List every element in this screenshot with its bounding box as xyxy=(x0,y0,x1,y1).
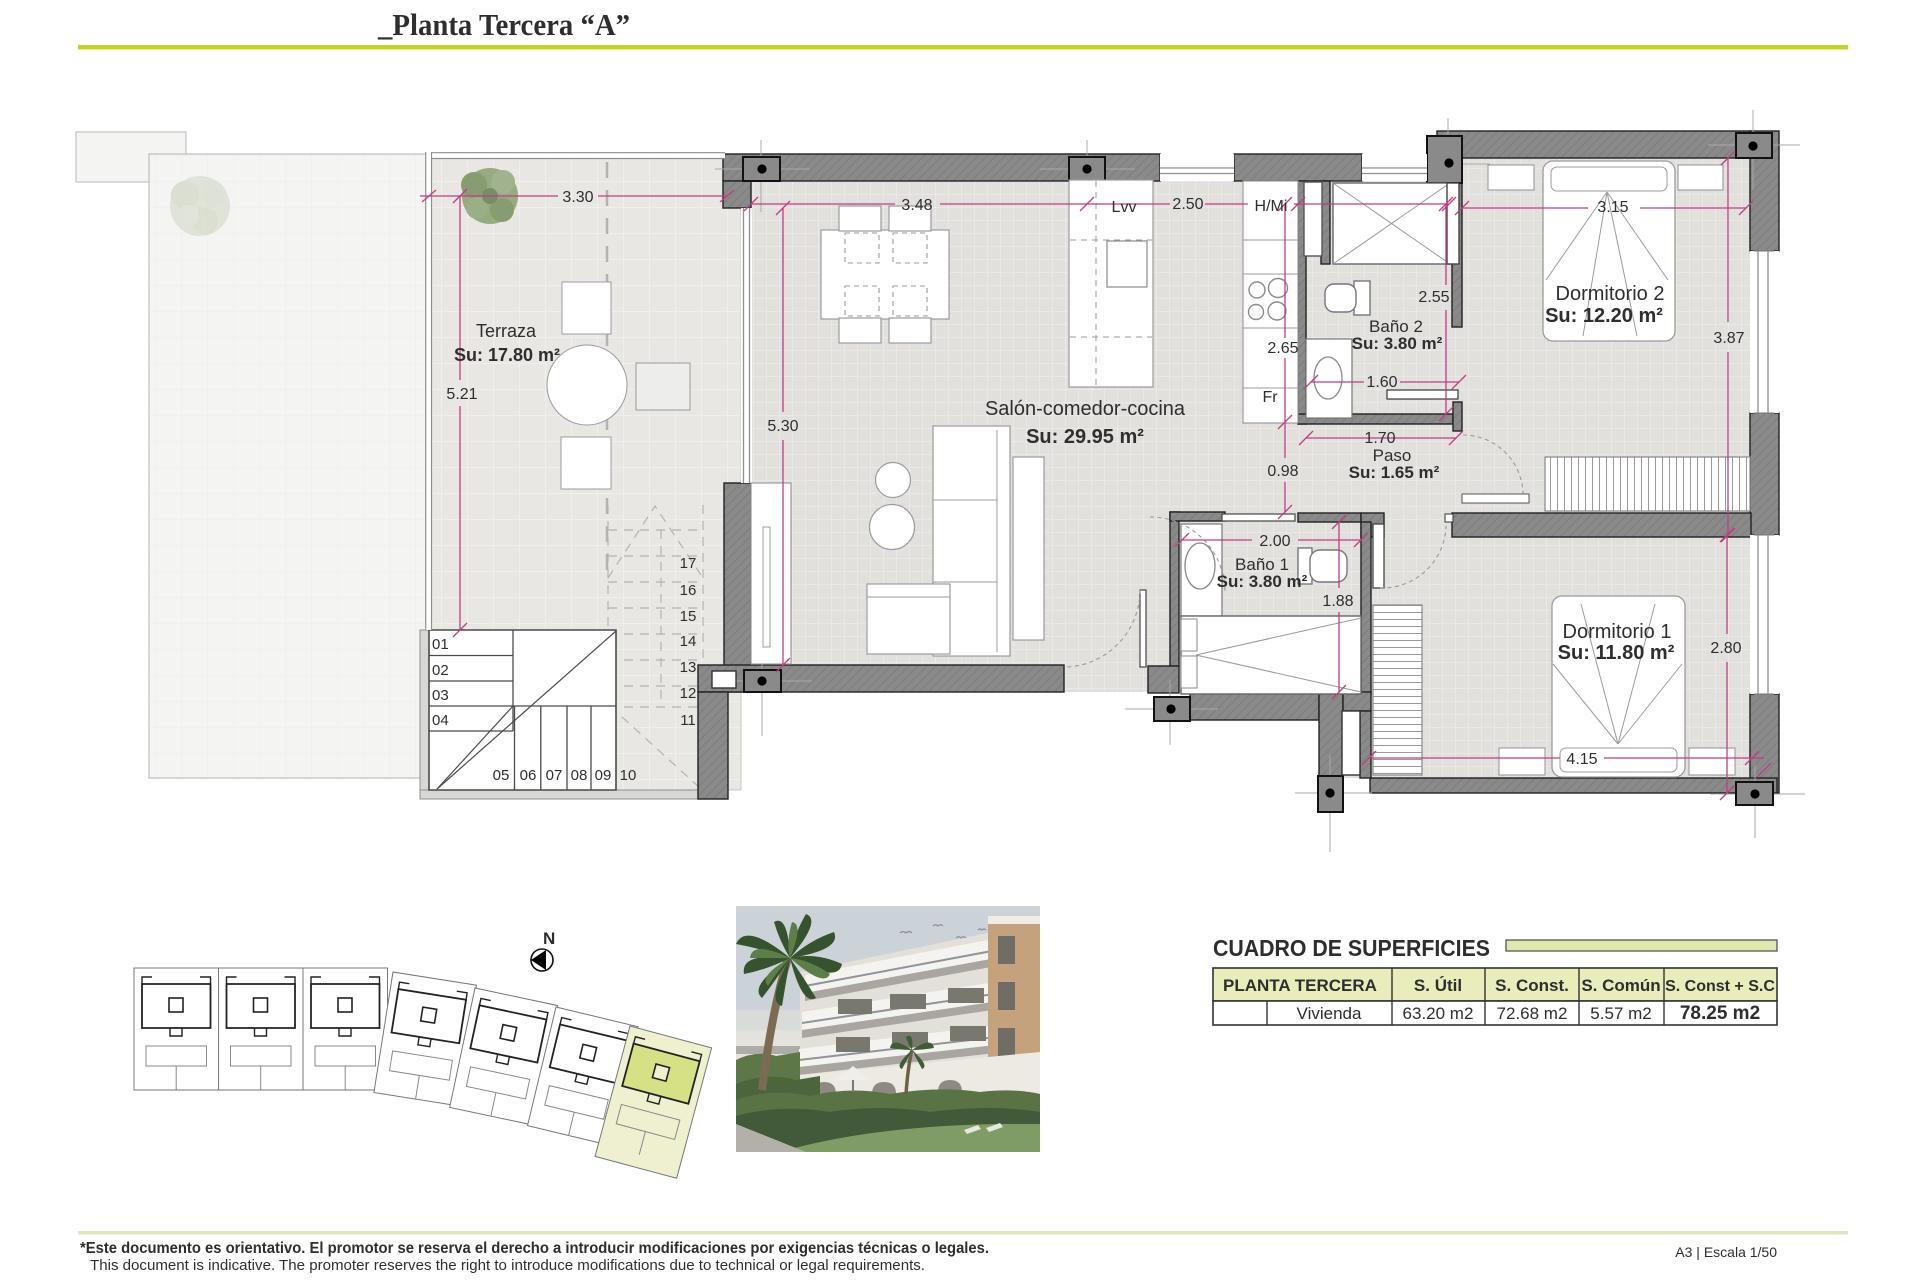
svg-text:08: 08 xyxy=(571,767,588,784)
svg-text:5.21: 5.21 xyxy=(446,386,477,403)
svg-text:5.30: 5.30 xyxy=(767,418,798,435)
svg-text:0.98: 0.98 xyxy=(1267,463,1298,480)
svg-text:2.80: 2.80 xyxy=(1710,640,1741,657)
svg-text:05: 05 xyxy=(493,767,510,784)
svg-text:Dormitorio 1: Dormitorio 1 xyxy=(1563,621,1672,643)
svg-text:3.48: 3.48 xyxy=(901,197,932,214)
svg-text:17: 17 xyxy=(680,555,697,572)
svg-text:3.15: 3.15 xyxy=(1597,199,1628,216)
svg-text:2.50: 2.50 xyxy=(1172,196,1203,213)
svg-text:2.55: 2.55 xyxy=(1418,289,1449,306)
svg-text:1.70: 1.70 xyxy=(1364,430,1395,447)
svg-text:78.25 m2: 78.25 m2 xyxy=(1680,1003,1760,1024)
svg-text:This document is indicative. T: This document is indicative. The promote… xyxy=(90,1257,925,1274)
svg-text:2.00: 2.00 xyxy=(1259,533,1290,550)
svg-text:Vivienda: Vivienda xyxy=(1297,1004,1362,1023)
svg-text:01: 01 xyxy=(432,636,449,653)
svg-text:5.57 m2: 5.57 m2 xyxy=(1590,1004,1651,1023)
svg-text:PLANTA TERCERA: PLANTA TERCERA xyxy=(1223,976,1377,995)
svg-text:Dormitorio 2: Dormitorio 2 xyxy=(1556,283,1665,305)
svg-text:1.60: 1.60 xyxy=(1366,374,1397,391)
svg-text:S. Const.: S. Const. xyxy=(1495,976,1569,995)
svg-text:Lvv: Lvv xyxy=(1112,199,1137,216)
svg-text:1.88: 1.88 xyxy=(1322,593,1353,610)
svg-text:S. Común: S. Común xyxy=(1581,976,1660,995)
svg-text:S. Const + S.C: S. Const + S.C xyxy=(1665,978,1775,995)
svg-text:3.30: 3.30 xyxy=(562,189,593,206)
svg-text:63.20 m2: 63.20 m2 xyxy=(1403,1004,1474,1023)
svg-text:Terraza: Terraza xyxy=(476,321,537,341)
svg-text:04: 04 xyxy=(432,712,449,729)
svg-text:Su: 1.65 m²: Su: 1.65 m² xyxy=(1349,463,1440,482)
svg-text:S. Útil: S. Útil xyxy=(1414,976,1462,995)
svg-text:13: 13 xyxy=(680,659,697,676)
svg-text:Su: 3.80 m²: Su: 3.80 m² xyxy=(1217,572,1308,591)
svg-text:07: 07 xyxy=(546,767,563,784)
svg-text:4.15: 4.15 xyxy=(1566,751,1597,768)
svg-text:16: 16 xyxy=(680,582,697,599)
svg-text:06: 06 xyxy=(520,767,537,784)
svg-text:11: 11 xyxy=(680,712,696,729)
svg-text:Su: 3.80 m²: Su: 3.80 m² xyxy=(1352,334,1443,353)
svg-text:A3 | Escala 1/50: A3 | Escala 1/50 xyxy=(1675,1244,1777,1260)
svg-text:Su: 11.80 m²: Su: 11.80 m² xyxy=(1558,642,1675,664)
svg-text:Su: 12.20 m²: Su: 12.20 m² xyxy=(1545,305,1663,327)
svg-text:N: N xyxy=(543,929,555,948)
svg-text:03: 03 xyxy=(432,687,449,704)
svg-text:Salón-comedor-cocina: Salón-comedor-cocina xyxy=(985,398,1186,420)
svg-text:14: 14 xyxy=(680,633,697,650)
svg-text:H/Mi: H/Mi xyxy=(1255,198,1288,215)
svg-text:09: 09 xyxy=(595,767,612,784)
svg-text:_Planta Tercera “A”: _Planta Tercera “A” xyxy=(377,7,630,42)
svg-text:02: 02 xyxy=(432,662,449,679)
svg-text:Su: 29.95 m²: Su: 29.95 m² xyxy=(1026,426,1144,448)
svg-text:3.87: 3.87 xyxy=(1713,330,1744,347)
svg-text:*Este documento es orientativo: *Este documento es orientativo. El promo… xyxy=(80,1240,989,1257)
svg-text:Su: 17.80 m²: Su: 17.80 m² xyxy=(454,345,560,365)
svg-text:15: 15 xyxy=(680,608,697,625)
svg-text:Fr: Fr xyxy=(1262,389,1278,406)
svg-text:10: 10 xyxy=(620,767,637,784)
svg-text:CUADRO DE SUPERFICIES: CUADRO DE SUPERFICIES xyxy=(1213,935,1490,961)
svg-text:12: 12 xyxy=(680,685,697,702)
svg-text:2.65: 2.65 xyxy=(1267,340,1298,357)
svg-text:72.68 m2: 72.68 m2 xyxy=(1497,1004,1568,1023)
